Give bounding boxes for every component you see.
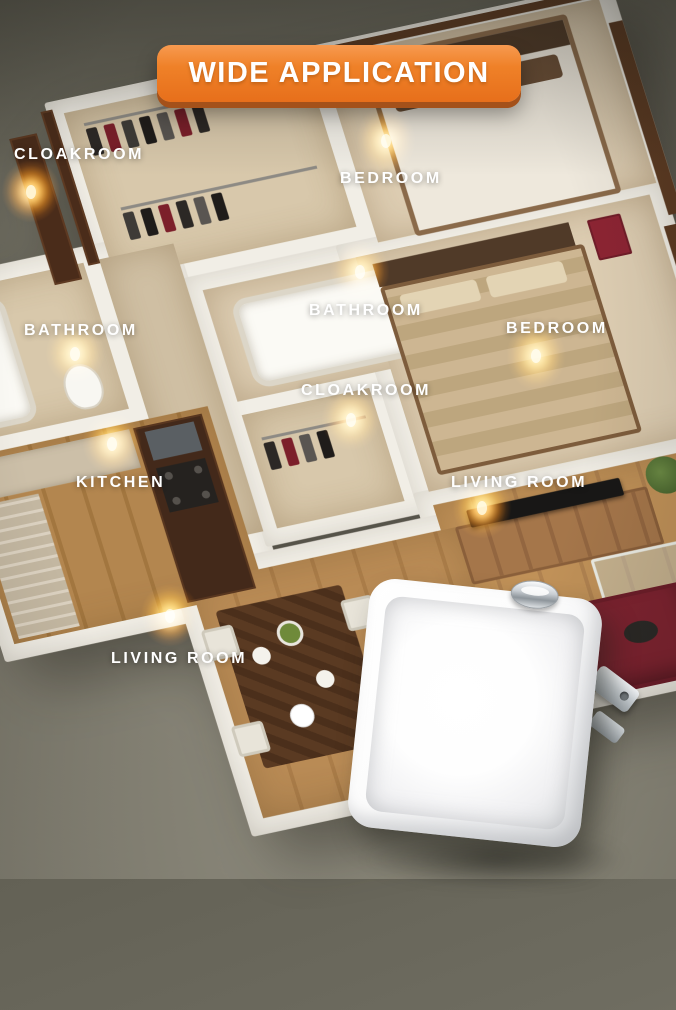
pillow <box>485 261 568 299</box>
room-label-bedroom-2: BEDROOM <box>506 320 608 338</box>
room-label-living-bottom: LIVING ROOM <box>111 650 247 668</box>
night-light-lens <box>364 595 585 831</box>
banner-title: WIDE APPLICATION <box>188 57 489 90</box>
room-label-bathroom-2: BATHROOM <box>309 302 423 320</box>
room-label-bathroom-1: BATHROOM <box>24 322 138 340</box>
night-light-body <box>346 576 605 849</box>
night-light-glow <box>0 156 68 254</box>
night-light-glow <box>349 100 423 212</box>
room-label-bedroom-1: BEDROOM <box>340 170 442 188</box>
room-label-cloakroom-2: CLOAKROOM <box>301 382 431 400</box>
appliance <box>145 421 203 460</box>
wide-application-banner: WIDE APPLICATION <box>157 45 521 102</box>
room-label-living-right: LIVING ROOM <box>451 474 587 492</box>
stove <box>156 458 219 513</box>
night-light-product <box>336 572 640 872</box>
room-label-cloakroom-1: CLOAKROOM <box>14 146 144 164</box>
light-sensor-knob <box>510 578 561 611</box>
room-label-kitchen: KITCHEN <box>76 474 165 492</box>
plug-prong-icon <box>588 710 626 745</box>
